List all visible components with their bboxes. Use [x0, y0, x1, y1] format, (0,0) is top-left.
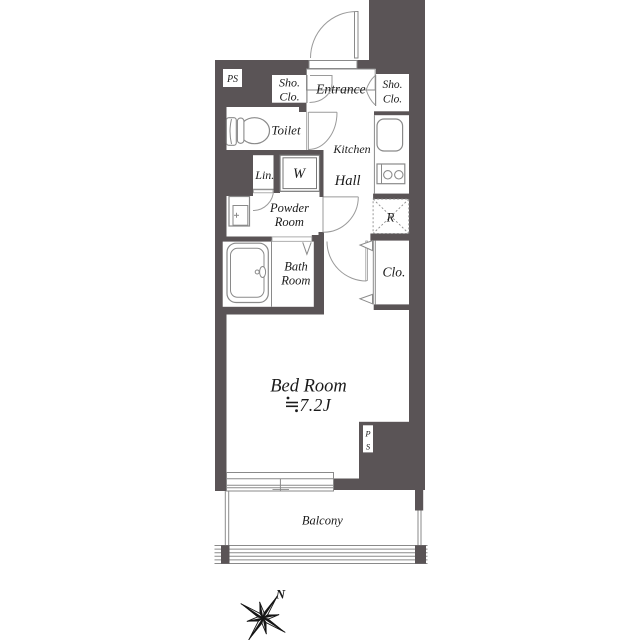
- svg-text:N: N: [275, 587, 286, 602]
- svg-text:7.2J: 7.2J: [300, 395, 332, 415]
- svg-text:Sho.: Sho.: [279, 76, 300, 90]
- svg-text:Clo.: Clo.: [279, 90, 299, 104]
- svg-text:R: R: [386, 211, 395, 225]
- svg-text:P: P: [364, 429, 370, 439]
- svg-text:Lin.: Lin.: [254, 168, 274, 182]
- svg-text:PS: PS: [226, 74, 238, 85]
- svg-text:Bath: Bath: [284, 259, 308, 273]
- svg-text:Toilet: Toilet: [271, 122, 301, 137]
- svg-text:Powder: Powder: [269, 201, 309, 215]
- svg-text:Clo.: Clo.: [383, 265, 406, 280]
- svg-text:Kitchen: Kitchen: [332, 142, 370, 156]
- svg-text:Room: Room: [280, 273, 310, 287]
- svg-text:Balcony: Balcony: [302, 514, 343, 528]
- svg-text:Clo.: Clo.: [383, 94, 402, 106]
- svg-text:Bed Room: Bed Room: [270, 376, 347, 396]
- svg-text:Sho.: Sho.: [383, 79, 403, 91]
- svg-text:W: W: [293, 166, 307, 182]
- svg-text:Hall: Hall: [334, 173, 361, 189]
- svg-text:Room: Room: [274, 215, 304, 229]
- svg-text:Entrance: Entrance: [315, 81, 366, 96]
